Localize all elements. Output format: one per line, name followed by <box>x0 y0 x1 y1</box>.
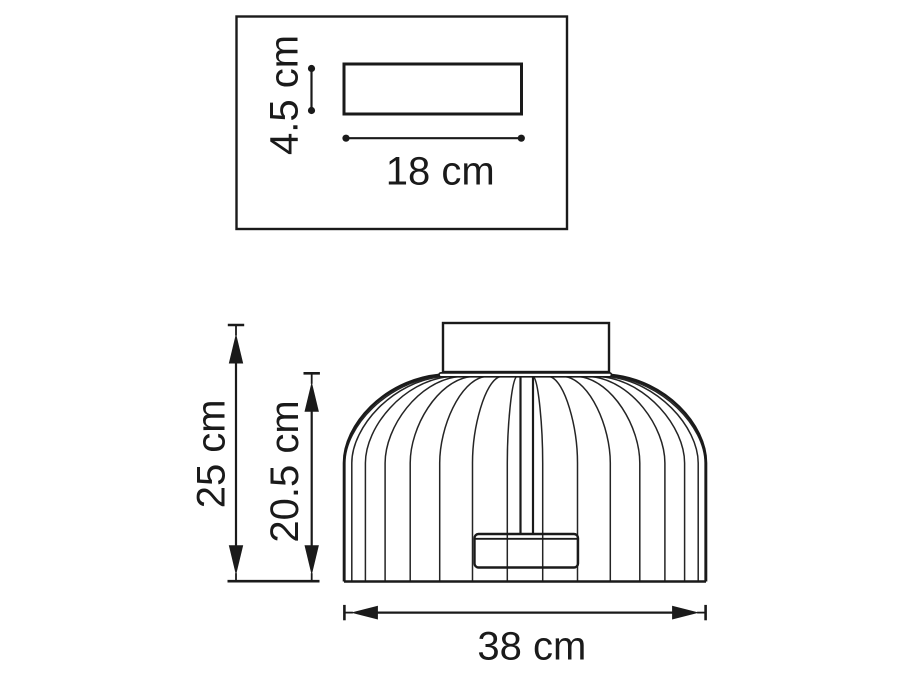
svg-text:4.5 cm: 4.5 cm <box>263 35 307 155</box>
svg-text:25 cm: 25 cm <box>189 399 233 508</box>
svg-text:20.5 cm: 20.5 cm <box>263 400 307 542</box>
svg-text:18 cm: 18 cm <box>386 149 495 193</box>
svg-text:38 cm: 38 cm <box>477 625 586 669</box>
